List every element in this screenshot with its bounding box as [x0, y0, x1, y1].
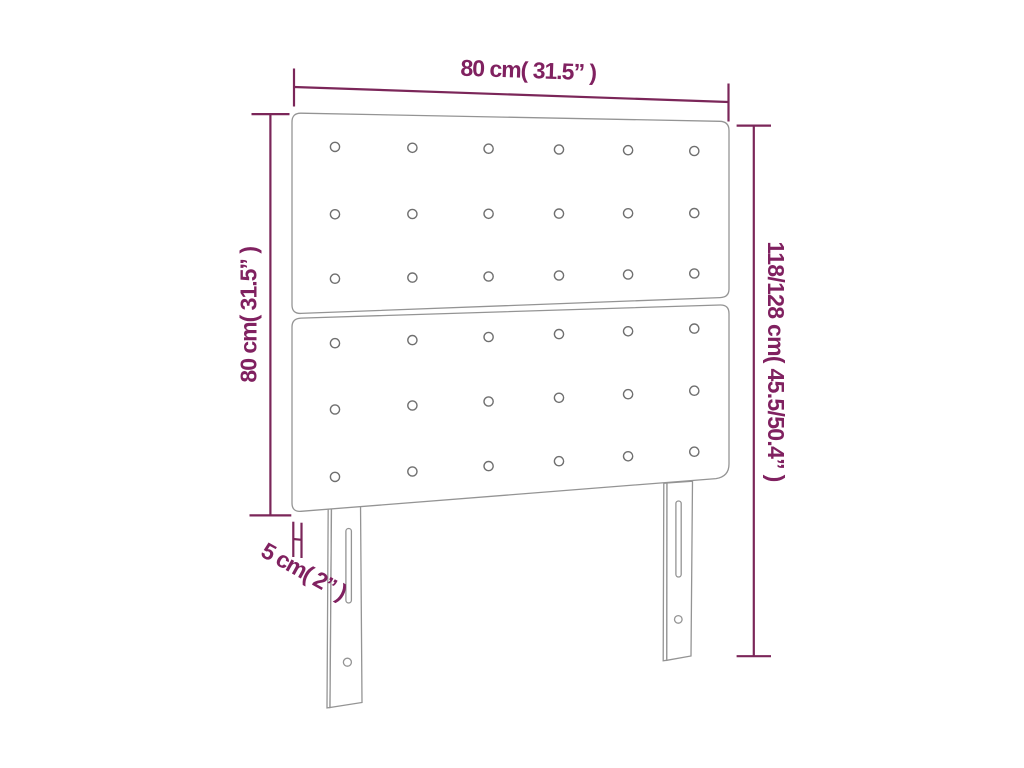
svg-text:80 cm( 31.5” ): 80 cm( 31.5” )	[460, 55, 597, 86]
svg-text:80 cm( 31.5” ): 80 cm( 31.5” )	[236, 247, 262, 383]
svg-text:118/128 cm( 45.5/50.4” ): 118/128 cm( 45.5/50.4” )	[763, 241, 789, 481]
